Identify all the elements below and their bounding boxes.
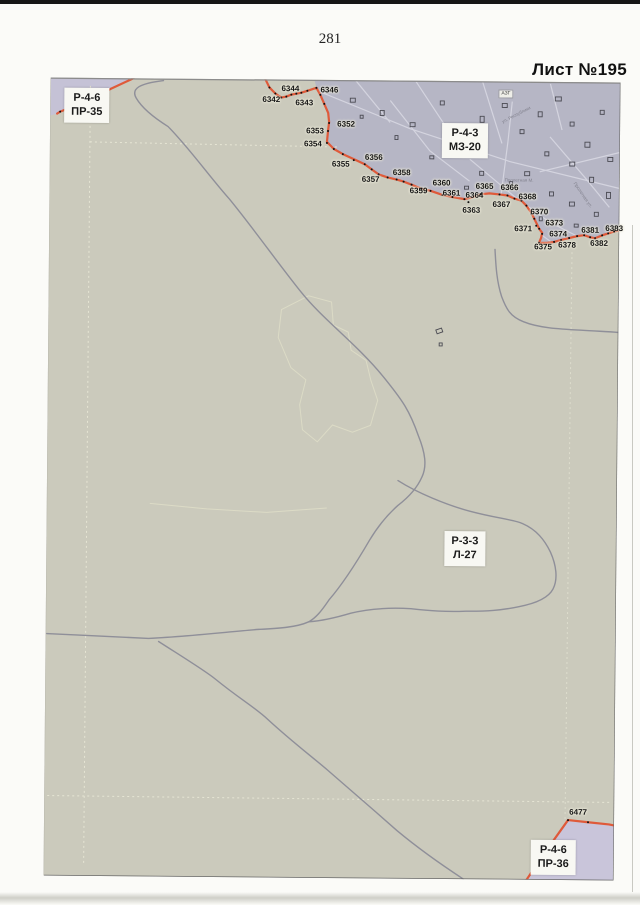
boundary-point-label: 6371 xyxy=(514,224,532,233)
boundary-point-dot xyxy=(429,190,432,193)
scan-artifact-bottom xyxy=(0,892,640,905)
boundary-point-label: 6378 xyxy=(558,240,576,249)
zone-code: Р-3-3 xyxy=(451,534,478,549)
boundary-point-label: 6366 xyxy=(501,183,519,192)
boundary-point-dot xyxy=(533,217,536,220)
boundary-point-dot xyxy=(328,122,331,125)
boundary-point-dot xyxy=(342,153,345,156)
boundary-point-label: 6352 xyxy=(337,120,355,129)
boundary-point-label: 6346 xyxy=(320,85,338,94)
azs-label: АЗГ xyxy=(498,89,513,98)
boundary-point-dot xyxy=(498,193,501,196)
boundary-point-dot xyxy=(513,197,516,200)
scan-artifact-top xyxy=(0,0,640,4)
boundary-point-dot xyxy=(535,224,538,227)
boundary-point-label: 6477 xyxy=(569,808,587,817)
zone-code: Л-27 xyxy=(451,548,478,563)
street-name-label: Пролетная ул. xyxy=(573,181,594,208)
boundary-point-dot xyxy=(538,227,541,230)
boundary-point-label: 6357 xyxy=(362,175,380,184)
boundary-point-dot xyxy=(285,95,288,98)
map-canvas[interactable]: 6342634463436346635263536354635563566357… xyxy=(44,78,621,881)
street-name-label: ул. Республики xyxy=(501,105,531,124)
zone-label-l27: Р-3-3 Л-27 xyxy=(444,531,485,566)
zone-code: Р-4-6 xyxy=(71,91,102,106)
zone-label-pr35: Р-4-6 ПР-35 xyxy=(64,88,109,123)
boundary-point-dot xyxy=(363,163,366,166)
boundary-point-dot xyxy=(268,86,271,89)
boundary-point-dot xyxy=(327,130,330,133)
boundary-point-dot xyxy=(326,142,329,145)
boundary-point-dot xyxy=(601,234,604,237)
boundary-point-label: 6374 xyxy=(549,229,567,238)
boundary-point-label: 6360 xyxy=(433,178,451,187)
zone-code: ПР-35 xyxy=(71,105,102,120)
boundary-point-dot xyxy=(587,821,590,824)
boundary-point-label: 6367 xyxy=(492,200,510,209)
boundary-point-label: 6373 xyxy=(545,218,563,227)
boundary-point-label: 6382 xyxy=(590,239,608,248)
sheet-title: Лист №195 xyxy=(532,60,627,80)
scan-artifact-right xyxy=(632,225,633,895)
zone-code: Р-4-6 xyxy=(538,843,569,858)
boundary-point-dot xyxy=(315,87,318,90)
boundary-point-label: 6365 xyxy=(476,182,494,191)
boundary-point-dot xyxy=(306,89,309,92)
boundary-point-dot xyxy=(395,178,398,181)
zone-label-pr36: Р-4-6 ПР-36 xyxy=(531,840,576,875)
boundary-point-dot xyxy=(451,196,454,199)
zone-code: ПР-36 xyxy=(538,857,569,872)
boundary-point-dot xyxy=(300,91,303,94)
boundary-point-dot xyxy=(567,819,570,822)
boundary-point-dot xyxy=(467,201,470,204)
boundary-point-label: 6356 xyxy=(365,153,383,162)
boundary-point-dot xyxy=(370,168,373,171)
boundary-point-dot xyxy=(59,110,62,113)
boundary-point-dot xyxy=(541,233,544,236)
boundary-point-dot xyxy=(295,92,298,95)
boundary-point-label: 6342 xyxy=(262,95,280,104)
boundary-point-dot xyxy=(525,204,528,207)
boundary-point-dot xyxy=(576,235,579,238)
street-name-label: Пролетная М. xyxy=(505,177,534,182)
boundary-point-dot xyxy=(352,159,355,162)
boundary-point-label: 6381 xyxy=(581,226,599,235)
boundary-point-dot xyxy=(290,93,293,96)
boundary-point-dot xyxy=(506,194,509,197)
boundary-point-label: 6354 xyxy=(304,139,322,148)
map-annotations: 6342634463436346635263536354635563566357… xyxy=(44,78,621,881)
boundary-point-label: 6343 xyxy=(295,98,313,107)
boundary-point-label: 6370 xyxy=(530,207,548,216)
boundary-point-dot xyxy=(553,241,556,244)
boundary-point-label: 6355 xyxy=(332,159,350,168)
zone-label-mz20: Р-4-3 МЗ-20 xyxy=(442,123,488,158)
boundary-point-dot xyxy=(333,148,336,151)
boundary-point-dot xyxy=(319,94,322,97)
boundary-point-label: 6368 xyxy=(519,192,537,201)
page-number: 281 xyxy=(0,31,640,48)
boundary-point-label: 6359 xyxy=(410,186,428,195)
boundary-point-label: 6375 xyxy=(534,242,552,251)
zone-code: МЗ-20 xyxy=(449,140,481,155)
zone-code: Р-4-3 xyxy=(449,126,481,141)
boundary-point-label: 6353 xyxy=(306,126,324,135)
boundary-point-dot xyxy=(386,176,389,179)
boundary-point-dot xyxy=(402,180,405,183)
boundary-point-dot xyxy=(323,103,326,106)
boundary-point-dot xyxy=(568,237,571,240)
boundary-point-label: 6363 xyxy=(462,206,480,215)
boundary-point-label: 6358 xyxy=(393,168,411,177)
